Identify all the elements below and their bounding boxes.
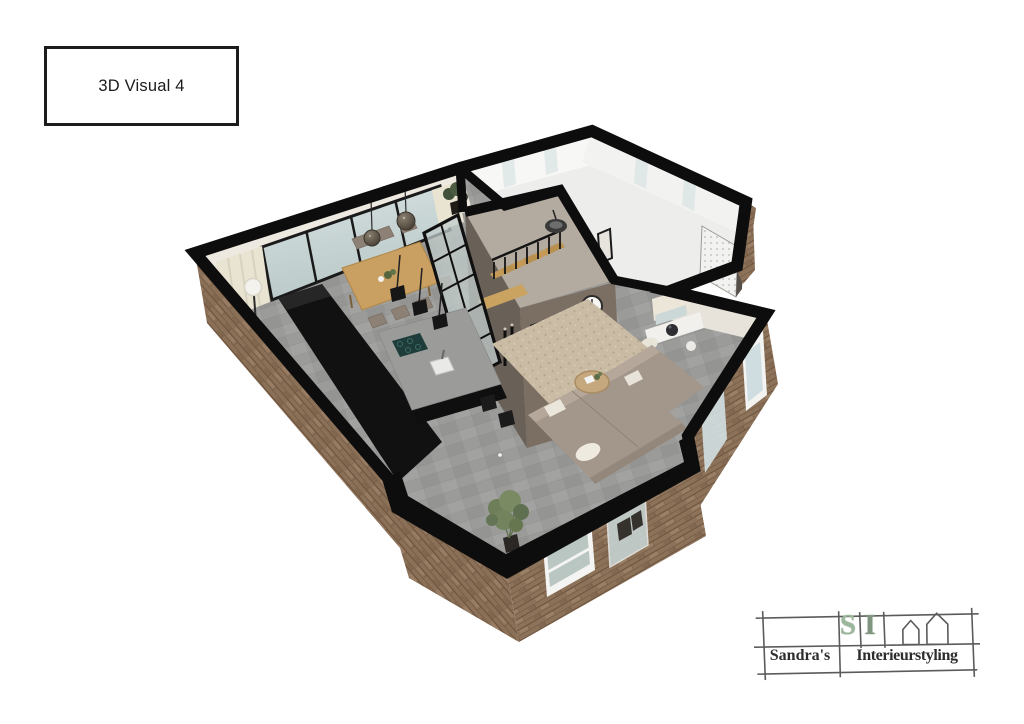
decor-vase <box>666 324 678 336</box>
title-label: 3D Visual 4 <box>98 77 184 96</box>
logo-initial-s: S <box>836 611 860 640</box>
side-table <box>686 341 696 351</box>
table-centerpiece-plant <box>390 269 396 275</box>
candle-tip <box>504 328 507 331</box>
candle-tip <box>511 324 514 327</box>
logo-name-second: Interieurstyling <box>840 647 974 665</box>
garage-window-icon <box>502 158 516 188</box>
coffee-table-plant <box>598 372 602 376</box>
brand-logo: S I Sandra's Interieurstyling <box>752 606 984 682</box>
title-box: 3D Visual 4 <box>44 46 239 126</box>
logo-name-first: Sandra's <box>762 647 838 665</box>
page-canvas: 3D Visual 4 S I Sandra's Interieurstylin… <box>0 0 1024 724</box>
logo-initial-i: I <box>862 611 878 640</box>
floor-spotlight-dot <box>498 453 502 457</box>
table-dish <box>378 276 384 282</box>
decor-vase-highlight <box>669 326 672 329</box>
